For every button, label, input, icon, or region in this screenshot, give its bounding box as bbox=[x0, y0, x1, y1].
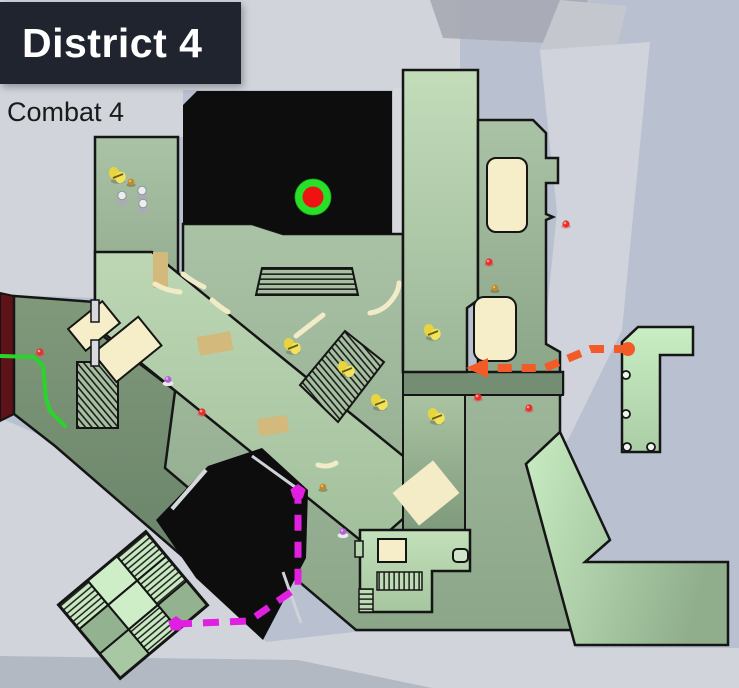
l-building-door bbox=[622, 410, 630, 418]
stairs-bottom-room-small bbox=[359, 589, 373, 612]
district-title: District 4 bbox=[22, 20, 202, 67]
stairs-bottom-room bbox=[377, 572, 422, 590]
combat-label: Combat 4 bbox=[7, 97, 124, 128]
district-banner: District 4 bbox=[0, 2, 241, 84]
route-orange-start-dot bbox=[621, 342, 635, 356]
objective-marker bbox=[295, 179, 332, 216]
bottom-room-door bbox=[355, 541, 363, 557]
l-building-door bbox=[623, 443, 631, 451]
alley-gap bbox=[393, 88, 402, 234]
bottom-room-table bbox=[378, 539, 406, 562]
screenshot-root: District 4 Combat 4 bbox=[0, 0, 739, 688]
l-building-door bbox=[622, 371, 630, 379]
objective-layer bbox=[295, 179, 332, 216]
room-cream-small bbox=[474, 297, 516, 361]
stairs-plaza-top bbox=[256, 268, 358, 295]
l-building-door bbox=[647, 443, 655, 451]
bottom-room-box bbox=[453, 549, 468, 562]
wall-door-slot bbox=[91, 340, 99, 366]
vertical-corridor bbox=[403, 70, 478, 372]
black-building-upper bbox=[183, 91, 392, 234]
wall-door-slot bbox=[91, 300, 99, 322]
room-cream-large bbox=[487, 158, 527, 232]
